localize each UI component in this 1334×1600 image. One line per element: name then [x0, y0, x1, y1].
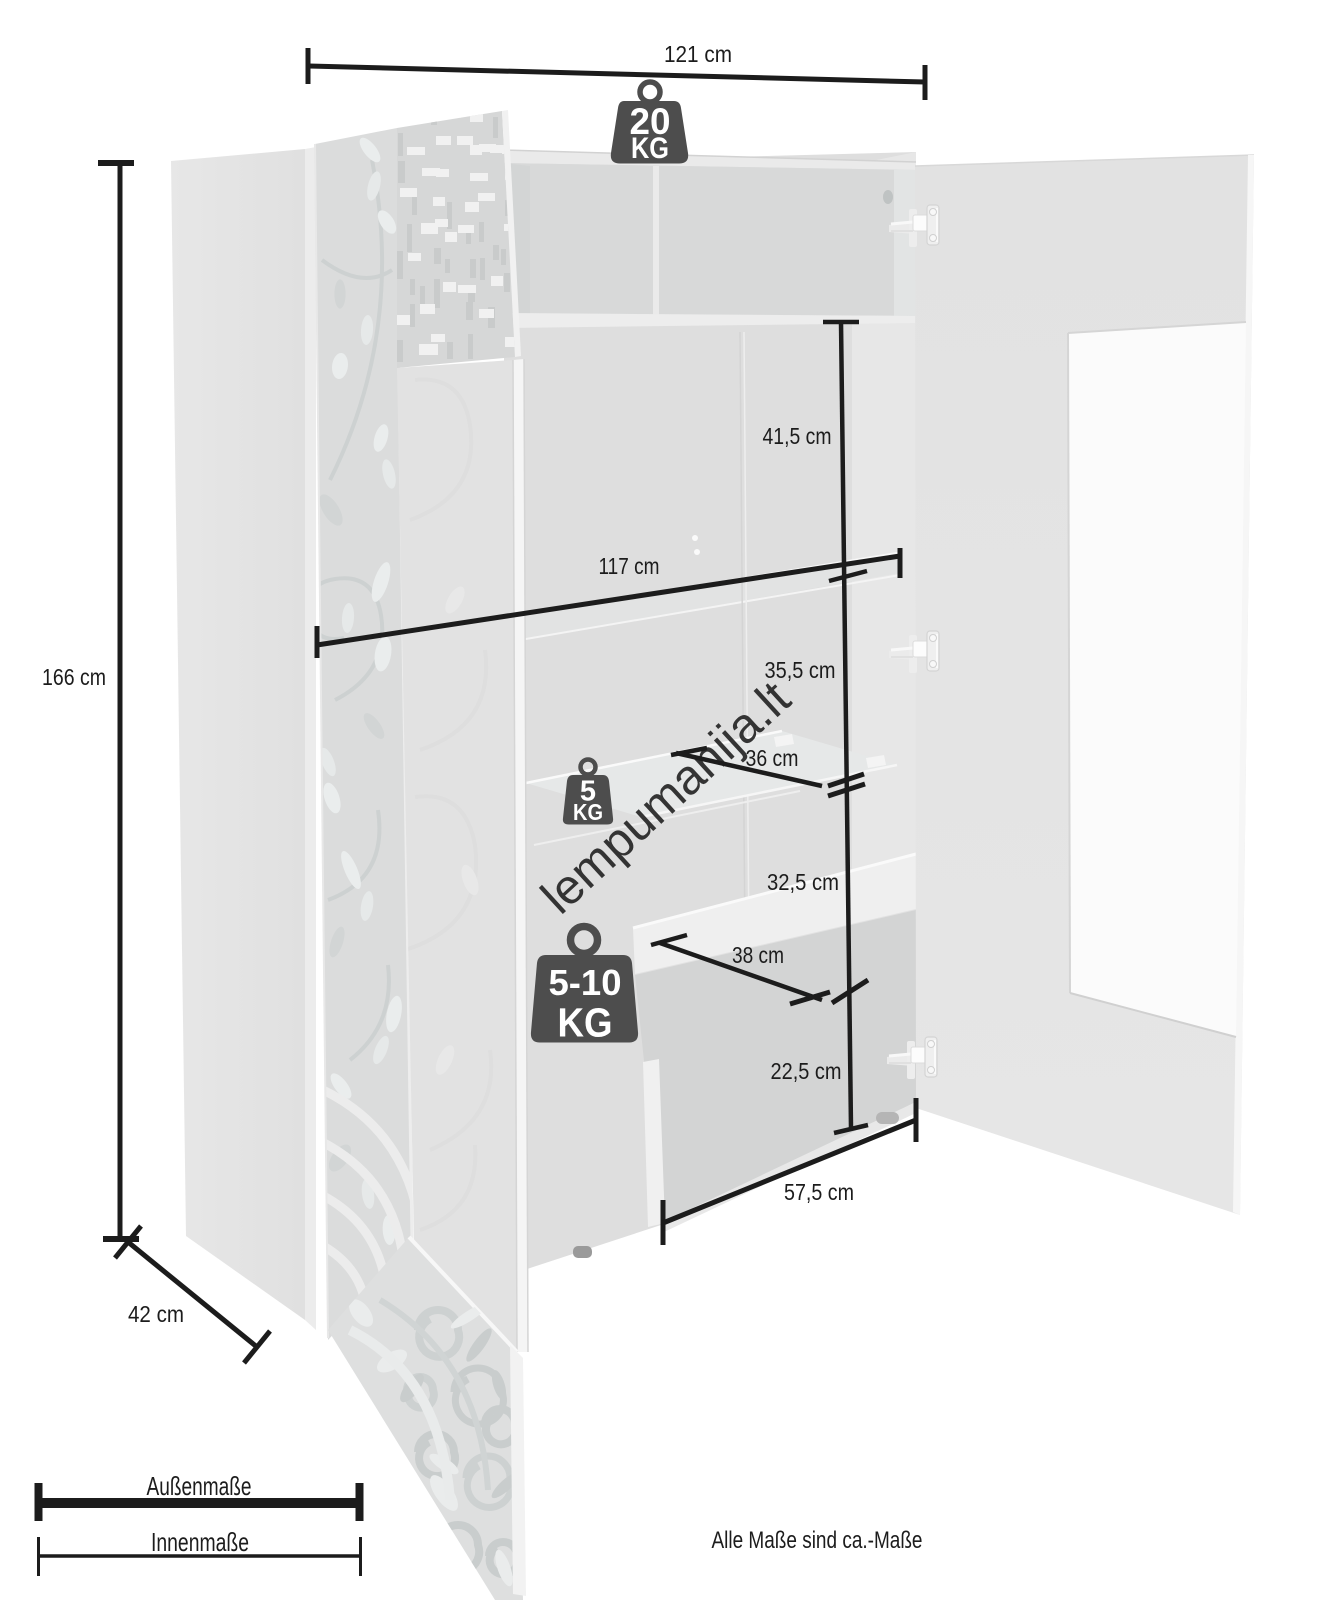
- svg-text:Innenmaße: Innenmaße: [151, 1527, 249, 1557]
- svg-text:57,5 cm: 57,5 cm: [784, 1179, 854, 1205]
- svg-text:41,5 cm: 41,5 cm: [763, 423, 832, 449]
- svg-text:KG: KG: [558, 1000, 613, 1046]
- svg-text:32,5 cm: 32,5 cm: [767, 869, 839, 895]
- svg-text:22,5 cm: 22,5 cm: [771, 1058, 842, 1084]
- svg-text:KG: KG: [631, 132, 669, 165]
- svg-text:166 cm: 166 cm: [42, 664, 106, 690]
- svg-text:KG: KG: [573, 799, 603, 825]
- svg-text:117 cm: 117 cm: [599, 553, 660, 579]
- svg-text:38 cm: 38 cm: [732, 942, 784, 968]
- svg-text:Außenmaße: Außenmaße: [147, 1471, 252, 1501]
- svg-text:5-10: 5-10: [549, 962, 622, 1003]
- svg-text:121 cm: 121 cm: [664, 41, 732, 67]
- svg-text:Alle Maße sind ca.-Maße: Alle Maße sind ca.-Maße: [712, 1527, 923, 1554]
- svg-text:36 cm: 36 cm: [746, 745, 799, 771]
- svg-text:42 cm: 42 cm: [128, 1301, 184, 1327]
- svg-text:35,5 cm: 35,5 cm: [765, 657, 836, 683]
